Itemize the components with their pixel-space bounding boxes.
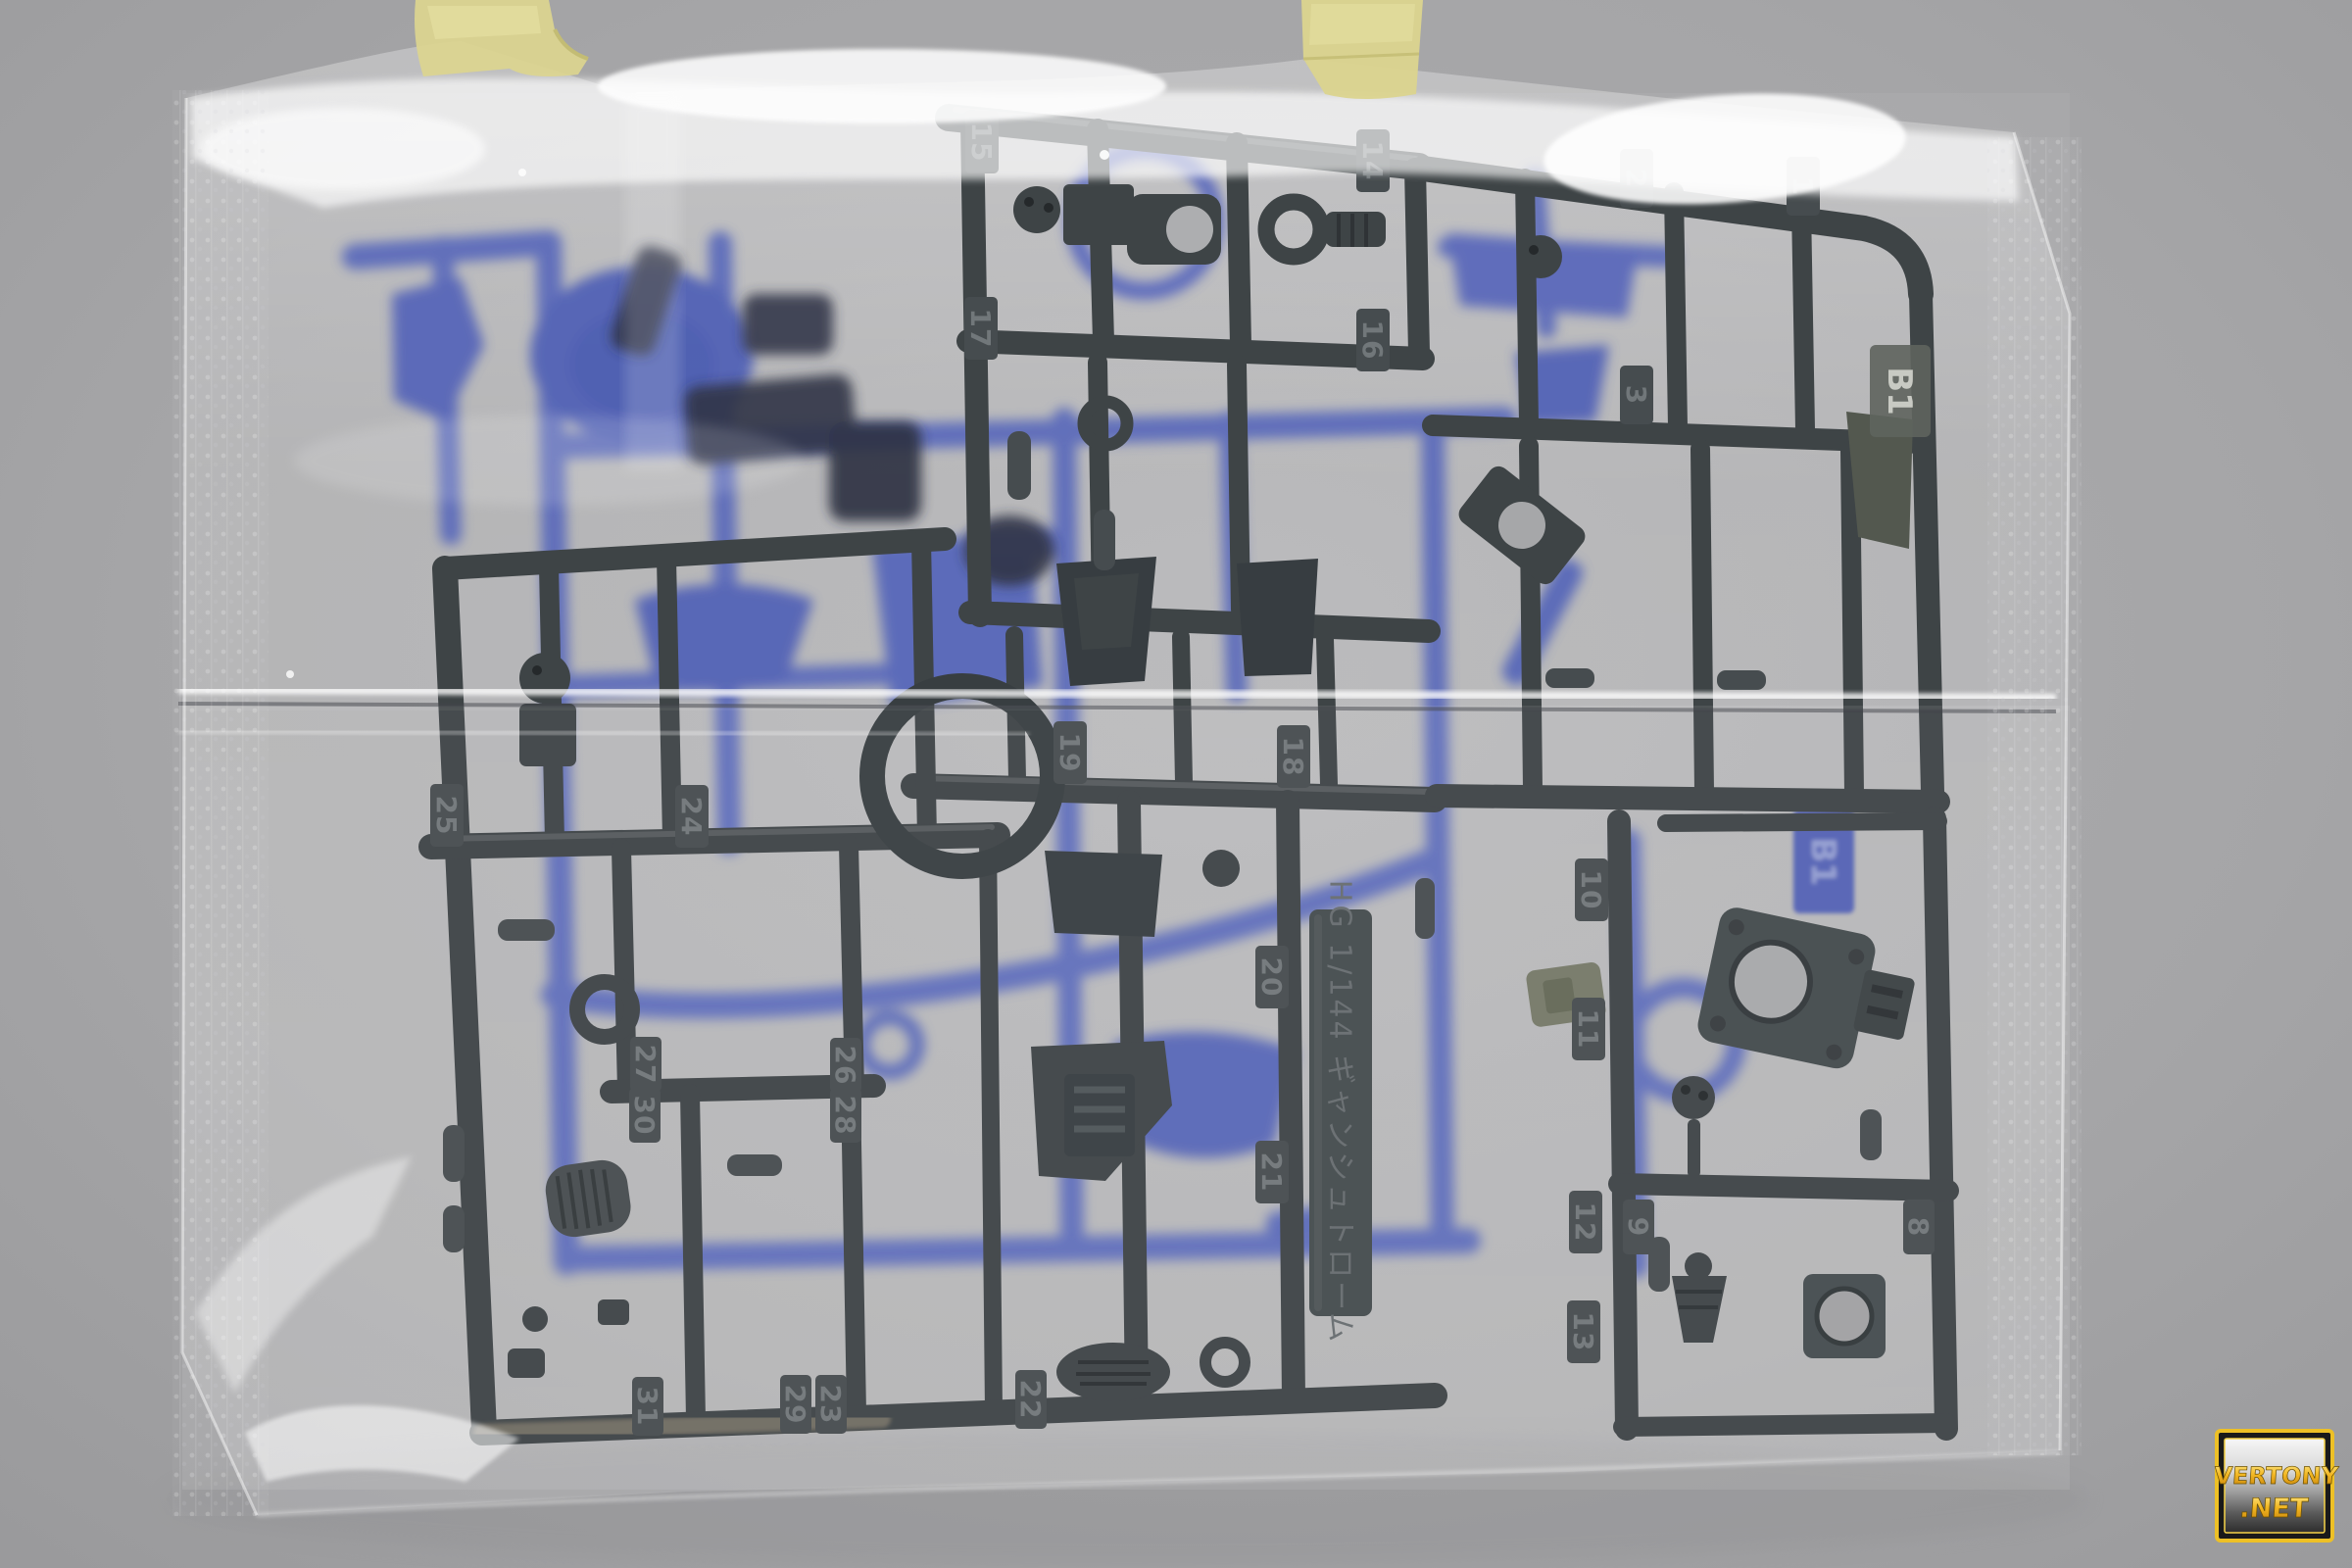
- bag-reflections: [172, 49, 2082, 1516]
- watermark-badge: VERTONY .NET: [2211, 1431, 2340, 1541]
- watermark-line1: VERTONY: [2213, 1462, 2339, 1490]
- photo-gunpla-runner-in-bag: B1: [0, 0, 2352, 1568]
- watermark-line2: .NET: [2238, 1494, 2309, 1524]
- photo-canvas: B1: [0, 0, 2352, 1568]
- bag-right-crimp: [1987, 137, 2082, 1455]
- masking-tape-right: [1301, 0, 1423, 99]
